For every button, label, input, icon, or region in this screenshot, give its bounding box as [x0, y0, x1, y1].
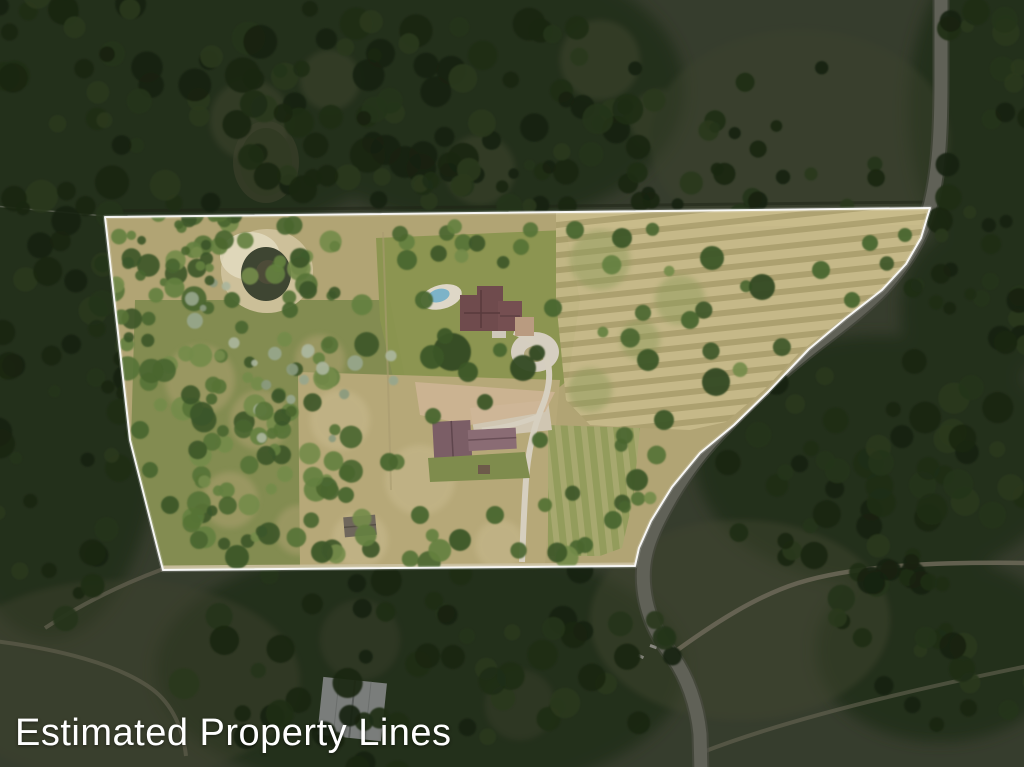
tree-canopy: [402, 551, 419, 568]
tree-canopy: [615, 439, 628, 452]
tree-canopy: [154, 398, 167, 411]
tree-canopy: [604, 511, 622, 529]
tree-canopy: [215, 230, 234, 249]
tree-canopy: [340, 426, 363, 449]
tree-canopy: [165, 278, 185, 298]
tree-canopy: [174, 220, 183, 229]
tree-canopy: [702, 343, 719, 360]
tree-canopy: [621, 328, 640, 347]
tree-canopy: [812, 261, 830, 279]
tree-canopy: [224, 292, 240, 308]
tree-canopy: [397, 250, 417, 270]
tree-canopy: [339, 389, 349, 399]
tree-canopy: [299, 375, 309, 385]
tree-canopy: [258, 522, 280, 544]
tree-canopy: [187, 313, 203, 329]
tree-canopy: [124, 332, 134, 342]
tree-canopy: [299, 281, 317, 299]
tree-canopy: [206, 393, 217, 404]
tree-canopy: [565, 486, 580, 501]
tree-canopy: [219, 496, 237, 514]
tree-canopy: [338, 487, 354, 503]
tree-canopy: [329, 287, 341, 299]
tree-canopy: [612, 228, 632, 248]
tree-canopy: [646, 223, 659, 236]
tree-canopy: [142, 312, 156, 326]
tree-canopy: [290, 248, 310, 268]
tree-canopy: [303, 393, 321, 411]
tree-canopy: [477, 394, 493, 410]
tree-canopy: [218, 538, 230, 550]
tree-canopy: [241, 268, 258, 285]
tree-canopy: [198, 475, 210, 487]
tree-canopy: [205, 276, 215, 286]
tree-canopy: [664, 266, 675, 277]
tree-canopy: [240, 456, 258, 474]
tree-canopy: [219, 482, 235, 498]
tree-canopy: [733, 362, 748, 377]
tree-canopy: [352, 294, 373, 315]
tree-canopy: [205, 264, 214, 273]
tree-canopy: [185, 292, 199, 306]
tree-canopy: [702, 368, 730, 396]
tree-canopy: [277, 332, 292, 347]
tree-canopy: [137, 236, 146, 245]
tree-canopy: [647, 446, 666, 465]
tree-canopy: [544, 299, 562, 317]
tree-canopy: [529, 345, 545, 361]
tree-canopy: [135, 270, 146, 281]
tree-canopy: [486, 506, 504, 524]
tree-canopy: [420, 345, 444, 369]
tree-canopy: [255, 402, 274, 421]
tree-canopy: [430, 245, 446, 261]
tree-canopy: [380, 453, 398, 471]
tree-canopy: [749, 274, 775, 300]
tree-canopy: [200, 305, 206, 311]
tree-canopy: [299, 443, 321, 465]
tree-canopy: [277, 466, 293, 482]
tree-canopy: [265, 264, 285, 284]
tree-canopy: [142, 462, 158, 478]
tree-canopy: [181, 385, 200, 404]
tree-canopy: [257, 446, 276, 465]
tree-canopy: [428, 539, 451, 562]
tree-canopy: [447, 219, 462, 234]
tree-canopy: [411, 506, 429, 524]
tree-canopy: [267, 428, 278, 439]
tree-canopy: [165, 258, 180, 273]
tree-canopy: [183, 514, 201, 532]
tree-canopy: [493, 343, 507, 357]
tree-canopy: [189, 344, 213, 368]
tree-canopy: [286, 406, 297, 417]
tree-canopy: [602, 255, 621, 274]
tree-canopy: [389, 376, 399, 386]
tree-canopy: [700, 246, 724, 270]
tree-canopy: [329, 424, 340, 435]
tree-canopy: [619, 501, 631, 513]
tree-canopy: [844, 292, 860, 308]
tree-canopy: [458, 362, 478, 382]
aerial-photo-canvas: [0, 0, 1024, 767]
tree-canopy: [225, 545, 249, 569]
tree-canopy: [449, 529, 471, 551]
tree-canopy: [354, 332, 379, 357]
tree-canopy: [287, 528, 307, 548]
tree-canopy: [301, 346, 313, 358]
tree-canopy: [577, 537, 593, 553]
tree-canopy: [538, 498, 552, 512]
tree-canopy: [261, 380, 271, 390]
tree-canopy: [190, 531, 208, 549]
tree-canopy: [127, 231, 136, 240]
tree-canopy: [271, 389, 285, 403]
tree-canopy: [347, 355, 363, 371]
tree-canopy: [217, 425, 229, 437]
tree-canopy: [303, 512, 319, 528]
tree-canopy: [637, 349, 659, 371]
tree-canopy: [214, 350, 225, 361]
tree-canopy: [339, 465, 355, 481]
tree-canopy: [437, 328, 453, 344]
tree-canopy: [190, 402, 214, 426]
tree-canopy: [329, 241, 340, 252]
tree-canopy: [862, 235, 878, 251]
tree-canopy: [392, 226, 408, 242]
tree-canopy: [131, 421, 149, 439]
tree-canopy: [355, 525, 377, 547]
tree-canopy: [286, 395, 295, 404]
small-barn-shed: [478, 465, 490, 474]
tree-canopy: [251, 360, 257, 366]
tree-canopy: [455, 249, 469, 263]
tree-canopy: [898, 228, 912, 242]
tree-canopy: [513, 239, 529, 255]
tree-canopy: [161, 496, 179, 514]
tree-canopy: [181, 246, 190, 255]
tree-canopy: [880, 256, 894, 270]
tree-canopy: [773, 338, 791, 356]
patio: [492, 331, 506, 338]
tree-canopy: [222, 282, 231, 291]
tree-canopy: [631, 492, 645, 506]
tree-canopy: [321, 336, 338, 353]
tree-canopy: [188, 441, 207, 460]
tree-canopy: [523, 222, 538, 237]
tree-canopy: [212, 379, 227, 394]
tree-canopy: [303, 467, 323, 487]
tree-canopy: [268, 347, 282, 361]
tree-canopy: [415, 291, 433, 309]
tree-canopy: [141, 334, 154, 347]
tree-canopy: [644, 492, 656, 504]
tree-canopy: [547, 543, 567, 563]
tree-canopy: [654, 410, 674, 430]
tree-canopy: [469, 235, 486, 252]
tree-canopy: [329, 435, 336, 442]
tree-canopy: [286, 364, 298, 376]
tree-canopy: [238, 494, 259, 515]
tree-canopy: [385, 350, 396, 361]
tree-canopy: [207, 505, 218, 516]
tree-canopy: [257, 433, 267, 443]
tree-canopy: [311, 541, 333, 563]
tree-canopy: [235, 321, 248, 334]
tree-canopy: [681, 311, 699, 329]
tree-canopy: [201, 240, 211, 250]
tree-canopy: [425, 408, 441, 424]
tree-canopy: [266, 484, 277, 495]
tree-canopy: [426, 529, 439, 542]
garage-roof: [515, 317, 534, 336]
tree-canopy: [532, 432, 548, 448]
tree-canopy: [497, 256, 510, 269]
tree-canopy: [196, 261, 206, 271]
estimated-property-lines-label: Estimated Property Lines: [15, 712, 452, 755]
tree-canopy: [111, 229, 127, 245]
tree-canopy: [276, 217, 294, 235]
tree-canopy: [635, 305, 651, 321]
tree-canopy: [122, 257, 134, 269]
aerial-map: Estimated Property Lines: [0, 0, 1024, 767]
tree-canopy: [626, 469, 648, 491]
tree-canopy: [282, 302, 298, 318]
tree-canopy: [149, 288, 164, 303]
tree-canopy: [510, 542, 526, 558]
tree-canopy: [316, 362, 329, 375]
tree-canopy: [566, 221, 584, 239]
tree-canopy: [139, 359, 163, 383]
tree-canopy: [237, 232, 254, 249]
tree-canopy: [324, 451, 344, 471]
tree-canopy: [228, 337, 239, 348]
tree-canopy: [598, 327, 609, 338]
